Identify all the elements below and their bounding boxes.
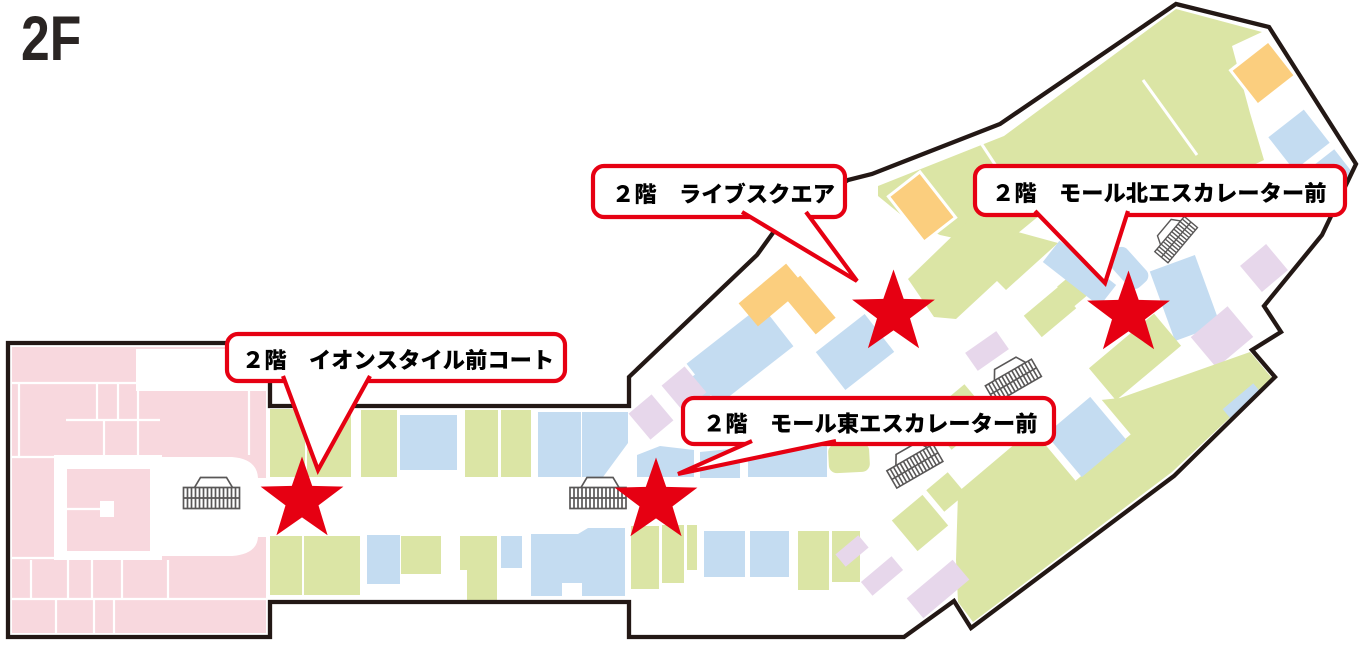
svg-text:2F: 2F: [21, 4, 81, 74]
